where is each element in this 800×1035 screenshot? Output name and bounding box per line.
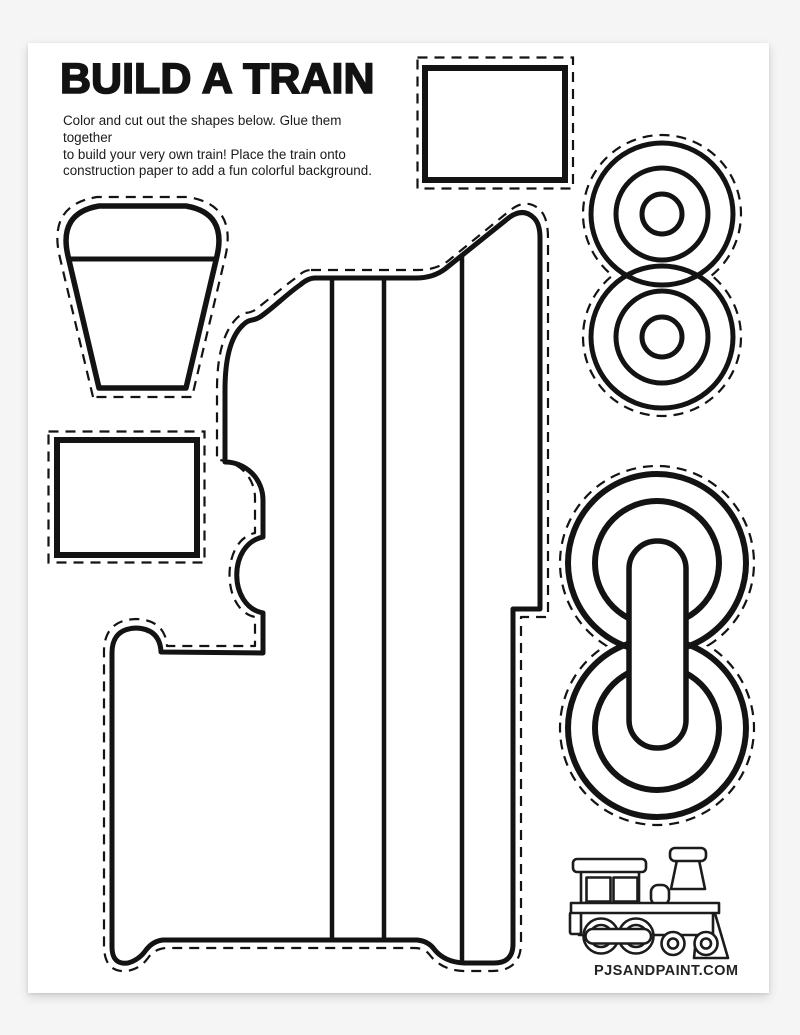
cutline-small-wheels <box>583 135 741 416</box>
shape-rectangle-small <box>57 440 197 555</box>
worksheet-shapes <box>0 0 800 1035</box>
small-wheel-top-hub <box>642 194 682 234</box>
piece-large-wheels <box>560 466 754 825</box>
piece-rectangle-large <box>418 58 574 189</box>
small-wheel-top-middle <box>616 168 708 260</box>
shape-rectangle-large <box>425 68 565 180</box>
logo-coupling-rod <box>586 929 652 944</box>
footer-website: PJSANDPAINT.COM <box>594 963 724 979</box>
logo-front-buffer <box>570 912 581 934</box>
small-wheel-bottom-middle <box>616 291 708 383</box>
logo-cab-roof <box>573 859 646 872</box>
shape-smokestack <box>66 206 219 388</box>
logo-small-wheel-right <box>695 932 718 955</box>
train-logo <box>570 848 728 958</box>
piece-rectangle-small <box>49 432 205 563</box>
logo-funnel <box>671 860 705 889</box>
logo-small-wheel-left <box>662 932 685 955</box>
piece-small-wheels <box>583 135 741 416</box>
small-wheel-bottom-hub <box>642 317 682 357</box>
page-background: BUILD A TRAIN Color and cut out the shap… <box>0 0 800 1035</box>
coupling-rod <box>629 541 686 748</box>
piece-smokestack <box>57 197 227 397</box>
logo-boiler-band <box>571 903 719 913</box>
logo-funnel-cap <box>670 848 706 861</box>
